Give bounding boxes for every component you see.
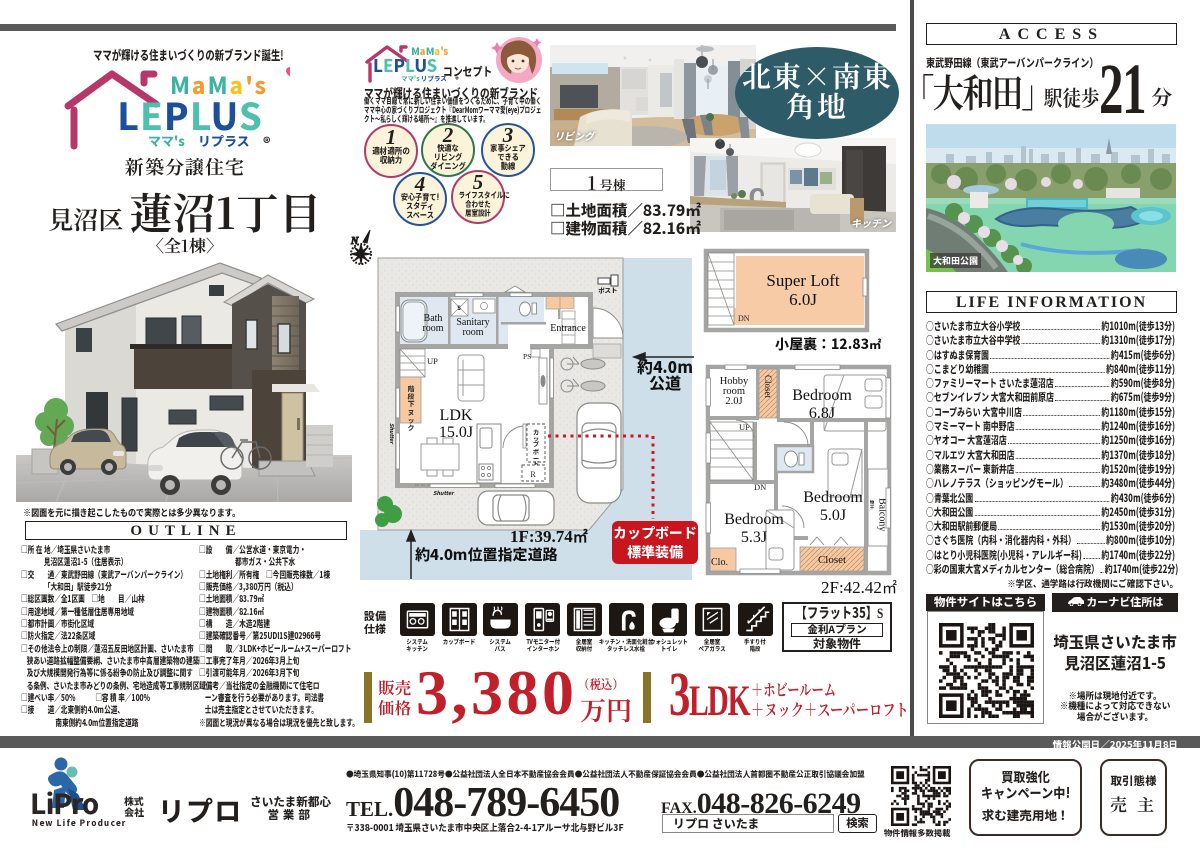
svg-text:ポスト: ポスト (598, 285, 618, 295)
svg-text:DN: DN (738, 314, 750, 323)
svg-text:ママ's リプラス: ママ's リプラス (148, 131, 250, 150)
svg-text:物干: 物干 (868, 500, 875, 509)
svg-text:カップボード: カップボード (532, 429, 541, 467)
svg-text:2.0J: 2.0J (725, 396, 742, 407)
svg-text:Entrance: Entrance (550, 323, 586, 334)
svg-text:Bedroom: Bedroom (792, 387, 852, 404)
svg-text:6.0J: 6.0J (789, 290, 817, 309)
svg-text:Super Loft: Super Loft (766, 271, 839, 290)
svg-text:ママ's リプラス: ママ's リプラス (401, 73, 447, 83)
svg-text:S: S (457, 303, 461, 312)
svg-text:2F:42.42㎡: 2F:42.42㎡ (821, 578, 897, 597)
svg-text:New Life Producer: New Life Producer (32, 817, 127, 829)
svg-text:5.0J: 5.0J (820, 507, 846, 524)
svg-text:5.3J: 5.3J (741, 529, 767, 546)
svg-text:UP: UP (427, 356, 438, 366)
svg-text:階段下ヌック: 階段下ヌック (406, 384, 416, 432)
svg-text:公道: 公道 (649, 370, 681, 394)
svg-text:小屋裏：12.83㎡: 小屋裏：12.83㎡ (775, 334, 881, 354)
svg-text:UP: UP (739, 422, 750, 432)
svg-text:DN: DN (754, 482, 766, 492)
svg-text:Clo.: Clo. (711, 557, 728, 568)
svg-text:room: room (422, 323, 443, 334)
svg-text:LDK: LDK (440, 407, 473, 424)
svg-text:Closet: Closet (763, 375, 773, 399)
svg-text:Closet: Closet (818, 554, 846, 566)
svg-text:®: ® (263, 133, 270, 150)
svg-text:room: room (462, 327, 483, 338)
svg-text:Bedroom: Bedroom (724, 511, 784, 528)
svg-text:Bedroom: Bedroom (803, 489, 863, 506)
svg-text:15.0J: 15.0J (439, 424, 473, 441)
svg-text:1F:39.74㎡: 1F:39.74㎡ (510, 527, 588, 546)
svg-text:Shutter: Shutter (433, 489, 455, 497)
svg-text:N: N (350, 236, 359, 247)
svg-text:R: R (530, 470, 536, 479)
svg-text:約4.0m位置指定道路: 約4.0m位置指定道路 (415, 544, 558, 565)
svg-text:Shutter: Shutter (388, 423, 396, 445)
svg-text:PS: PS (523, 352, 531, 361)
